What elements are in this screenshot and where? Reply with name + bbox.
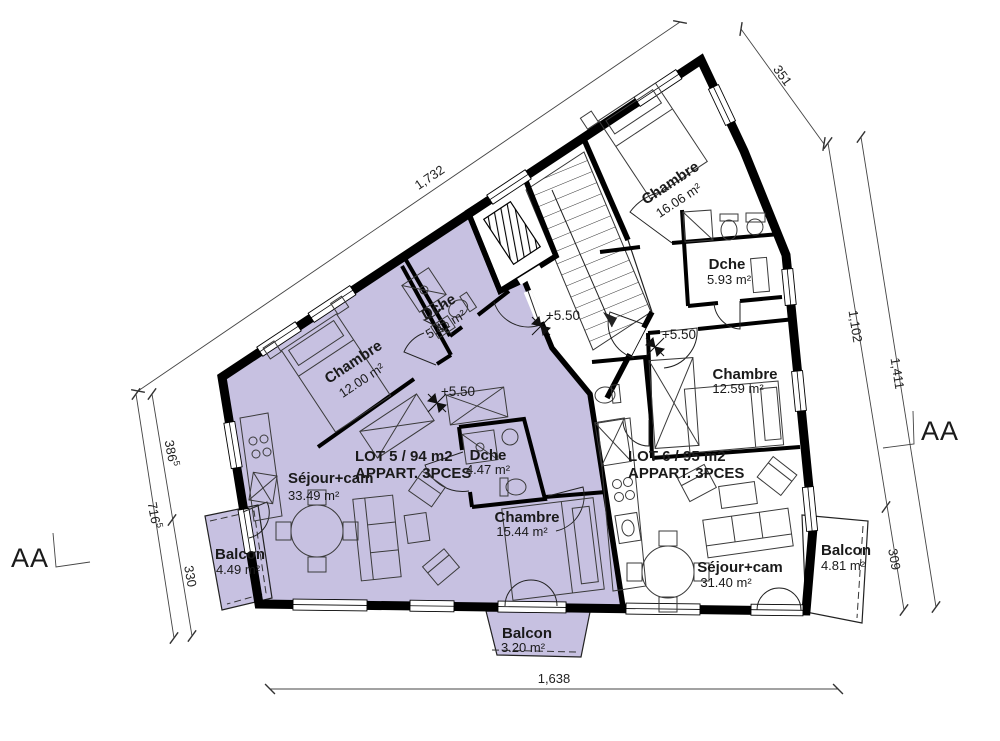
label-balcon-south-area: 3.20 m² (501, 640, 546, 655)
section-label-left: AA (11, 543, 49, 573)
label-lot5-name: LOT 5 / 94 m2 (355, 448, 453, 465)
floor-plan-drawing: +5.50 +5.50 +5.50 Chambre 12.00 m² Dche … (0, 0, 1000, 741)
label-lot5-dche2-area: 4.47 m² (466, 462, 511, 477)
shower-dche-593 (683, 210, 713, 242)
dim-right-outer: 1,411 (888, 357, 908, 391)
sofa-lot6 (703, 508, 793, 558)
dim-top-right: 351 (770, 62, 795, 88)
label-lot6-dche-name: Dche (709, 256, 746, 273)
dim-top: 1,732 (412, 162, 447, 193)
label-lot6-type: APPART. 3PCES (628, 465, 744, 482)
label-lot6-sejour-area: 31.40 m² (700, 575, 752, 590)
level-text-lot6: +5.50 (662, 327, 696, 342)
label-lot5-sejour-area: 33.49 m² (288, 488, 340, 503)
dim-left-total: 7165 (145, 501, 165, 530)
label-lot6-balcon-name: Balcon (821, 542, 871, 559)
floor-plan-page: +5.50 +5.50 +5.50 Chambre 12.00 m² Dche … (0, 0, 1000, 741)
elevator-car (484, 202, 540, 265)
dim-right-lower: 309 (885, 547, 904, 571)
label-lot6-name: LOT 6 / 95 m2 (628, 448, 726, 465)
section-label-right: AA (921, 416, 959, 446)
door-gap-lot6-entry (625, 325, 646, 355)
section-line-left (53, 533, 90, 567)
label-lot6-dche-area: 5.93 m² (707, 272, 752, 287)
label-lot6-sejour-name: Séjour+cam (697, 559, 782, 576)
toilet-dche-593 (720, 214, 738, 240)
label-lot6-balcon-area: 4.81 m² (821, 558, 866, 573)
label-balcon-west-area: 4.49 m² (216, 562, 261, 577)
dim-right-inner: 1,102 (845, 309, 865, 343)
wardrobe-chambre-1259 (649, 358, 699, 449)
label-lot5-chambre2-area: 15.44 m² (496, 524, 548, 539)
level-text-hall: +5.50 (546, 308, 580, 323)
armchair-lot6-a (757, 457, 797, 496)
label-lot6-chambre2-area: 12.59 m² (712, 381, 764, 396)
coffee-table-lot6 (719, 482, 758, 509)
dim-bottom: 1,638 (538, 671, 571, 686)
level-text-lot5: +5.50 (441, 384, 475, 399)
label-lot5-sejour-name: Séjour+cam (288, 470, 373, 487)
cabinet-dche-593 (751, 257, 770, 292)
dim-left-upper: 3865 (162, 439, 182, 468)
label-balcon-west-name: Balcon (215, 546, 265, 563)
sink-dche-593 (746, 213, 765, 235)
